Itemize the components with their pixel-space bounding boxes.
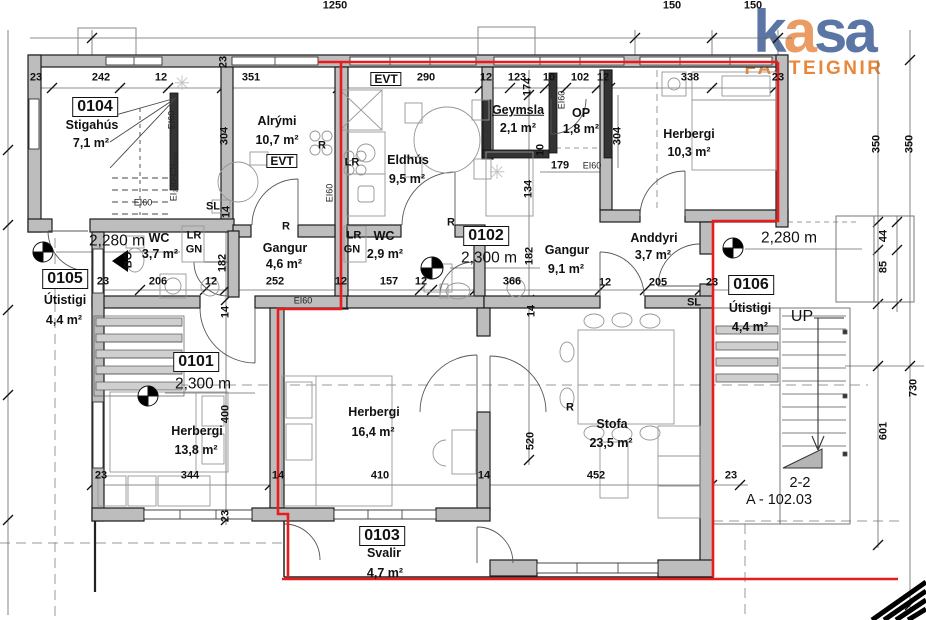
- room-herbergi-164: Herbergi: [348, 406, 399, 419]
- dim-12: 12: [205, 277, 217, 288]
- dim-400: 400: [221, 405, 232, 423]
- dim-14: 14: [527, 305, 538, 317]
- unit-tag-0104: 0104: [72, 97, 118, 117]
- gn-label: GN: [344, 245, 361, 256]
- dim-12: 12: [335, 277, 347, 288]
- dim-23: 23: [95, 471, 107, 482]
- dim-601: 601: [879, 422, 890, 440]
- dim-3,7 m²: 3,7 m²: [142, 248, 178, 261]
- room-alrymi: Alrými: [258, 115, 297, 128]
- evt-box: EVT: [266, 154, 297, 168]
- dim-410: 410: [371, 471, 389, 482]
- level-right: 2,280 m: [761, 230, 817, 246]
- dim-157: 157: [380, 277, 398, 288]
- dim-179: 179: [551, 161, 569, 172]
- dim-174: 174: [523, 78, 534, 96]
- sheet-reference: A - 102.03: [746, 493, 812, 508]
- room-stigahus: Stigahús: [66, 119, 119, 132]
- dim-338: 338: [681, 73, 699, 84]
- bo-label: BO: [124, 252, 135, 269]
- room-op: OP: [572, 107, 590, 120]
- dim-10: 10: [536, 144, 547, 156]
- plan-labels-layer: 1250150150232421235129012123101021233823…: [0, 0, 926, 620]
- dim-14: 14: [221, 306, 232, 318]
- dim-23: 23: [30, 73, 42, 84]
- room-anddyri: Anddyri: [630, 232, 677, 245]
- lr-label: LR: [345, 158, 360, 169]
- room-wc-29: WC: [374, 230, 395, 243]
- dim-4,4 m²: 4,4 m²: [46, 314, 82, 327]
- level-left: 2,280 m: [89, 233, 145, 249]
- dim-10,7 m²: 10,7 m²: [255, 134, 298, 147]
- unit-tag-0103: 0103: [359, 526, 405, 546]
- room-stofa: Stofa: [596, 418, 627, 431]
- dim-16,4 m²: 16,4 m²: [351, 426, 394, 439]
- sliding-door-label: SL: [687, 298, 701, 309]
- dim-14: 14: [272, 471, 284, 482]
- radiator-label: R: [566, 403, 574, 414]
- dim-7,1 m²: 7,1 m²: [73, 137, 109, 150]
- dim-182: 182: [525, 247, 536, 265]
- room-svalir: Svalir: [367, 547, 401, 560]
- unit-tag-0105: 0105: [42, 269, 88, 289]
- fire-rating-label: EI60: [583, 162, 602, 171]
- evt-box: EVT: [370, 72, 401, 86]
- dim-12: 12: [155, 73, 167, 84]
- room-utistigi-left: Útistigi: [44, 294, 86, 307]
- dim-2,9 m²: 2,9 m²: [367, 248, 403, 261]
- room-eldhus: Eldhús: [387, 154, 429, 167]
- section-mark: 2-2: [790, 476, 811, 491]
- room-herbergi-138: Herbergi: [171, 425, 222, 438]
- dim-452: 452: [587, 471, 605, 482]
- fire-rating-label: EI60: [168, 111, 177, 130]
- dim-242: 242: [92, 73, 110, 84]
- dim-23: 23: [706, 278, 718, 289]
- dim-4,6 m²: 4,6 m²: [266, 258, 302, 271]
- dim-1,8 m²: 1,8 m²: [563, 123, 599, 136]
- dim-23,5 m²: 23,5 m²: [589, 437, 632, 450]
- dim-10,3 m²: 10,3 m²: [667, 146, 710, 159]
- dim-23: 23: [97, 277, 109, 288]
- dim-182: 182: [218, 254, 229, 272]
- fire-rating-label: EI₂30-CS₂₀₀: [170, 153, 179, 201]
- dim-12: 12: [480, 73, 492, 84]
- gn-label: GN: [186, 245, 203, 256]
- floorplan-page: kasa FASTEIGNIR: [0, 0, 926, 620]
- dim-9,5 m²: 9,5 m²: [389, 173, 425, 186]
- dim-134: 134: [524, 180, 535, 198]
- dim-102: 102: [571, 73, 589, 84]
- dim-290: 290: [417, 73, 435, 84]
- dim-304: 304: [613, 127, 624, 145]
- room-gangur-46: Gangur: [263, 242, 307, 255]
- dim-13,8 m²: 13,8 m²: [174, 444, 217, 457]
- fire-rating-label: EI60: [134, 199, 153, 208]
- fire-rating-label: EI60: [558, 91, 567, 110]
- dim-252: 252: [266, 277, 284, 288]
- lr-label: LR: [347, 231, 362, 242]
- room-herbergi-103: Herbergi: [663, 128, 714, 141]
- level-0101: 2,300 m: [175, 376, 231, 392]
- unit-tag-0106: 0106: [728, 275, 774, 295]
- dim-150: 150: [744, 1, 762, 12]
- symbol-asterisk: ✳: [489, 163, 506, 183]
- dim-3,7 m²: 3,7 m²: [635, 249, 671, 262]
- dim-12: 12: [599, 278, 611, 289]
- dim-10: 10: [543, 73, 555, 84]
- dim-23: 23: [219, 56, 230, 68]
- dim-12: 12: [597, 73, 609, 84]
- room-utistigi-right: Útistigi: [729, 302, 771, 315]
- room-wc-37: WC: [149, 232, 170, 245]
- radiator-label: R: [318, 141, 326, 152]
- sliding-door-label: SL: [206, 202, 220, 213]
- dim-4,4 m²: 4,4 m²: [732, 321, 768, 334]
- dim-730: 730: [909, 379, 920, 397]
- dim-366: 366: [503, 277, 521, 288]
- level-0102: 2,300 m: [461, 250, 517, 266]
- dim-351: 351: [242, 73, 260, 84]
- dim-9,1 m²: 9,1 m²: [548, 263, 584, 276]
- radiator-label: R: [447, 218, 455, 229]
- dim-206: 206: [149, 277, 167, 288]
- radiator-label: R: [282, 222, 290, 233]
- symbol-asterisk: ✳: [174, 74, 191, 94]
- dim-350: 350: [905, 135, 916, 153]
- dim-205: 205: [649, 278, 667, 289]
- room-geymsla: Geymsla: [492, 104, 544, 117]
- dim-85: 85: [879, 261, 890, 273]
- dim-350: 350: [872, 135, 883, 153]
- dim-14: 14: [478, 471, 490, 482]
- dim-14: 14: [222, 206, 233, 218]
- dim-520: 520: [526, 432, 537, 450]
- dim-344: 344: [181, 471, 199, 482]
- dim-304: 304: [220, 127, 231, 145]
- dim-23: 23: [772, 73, 784, 84]
- stairs-up-label: UP: [791, 309, 813, 325]
- dim-12: 12: [415, 277, 427, 288]
- unit-tag-0102: 0102: [463, 226, 509, 246]
- lr-label: LR: [187, 231, 202, 242]
- dim-2,1 m²: 2,1 m²: [500, 122, 536, 135]
- dim-1250: 1250: [323, 1, 347, 12]
- dim-150: 150: [663, 1, 681, 12]
- unit-tag-0101: 0101: [173, 352, 219, 372]
- dim-4,7 m²: 4,7 m²: [367, 567, 403, 580]
- dim-44: 44: [879, 230, 890, 242]
- fire-rating-label: EI60: [326, 184, 335, 203]
- room-gangur-91: Gangur: [545, 244, 589, 257]
- dim-23: 23: [221, 510, 232, 522]
- dim-23: 23: [725, 471, 737, 482]
- fire-rating-label: EI60: [294, 297, 313, 306]
